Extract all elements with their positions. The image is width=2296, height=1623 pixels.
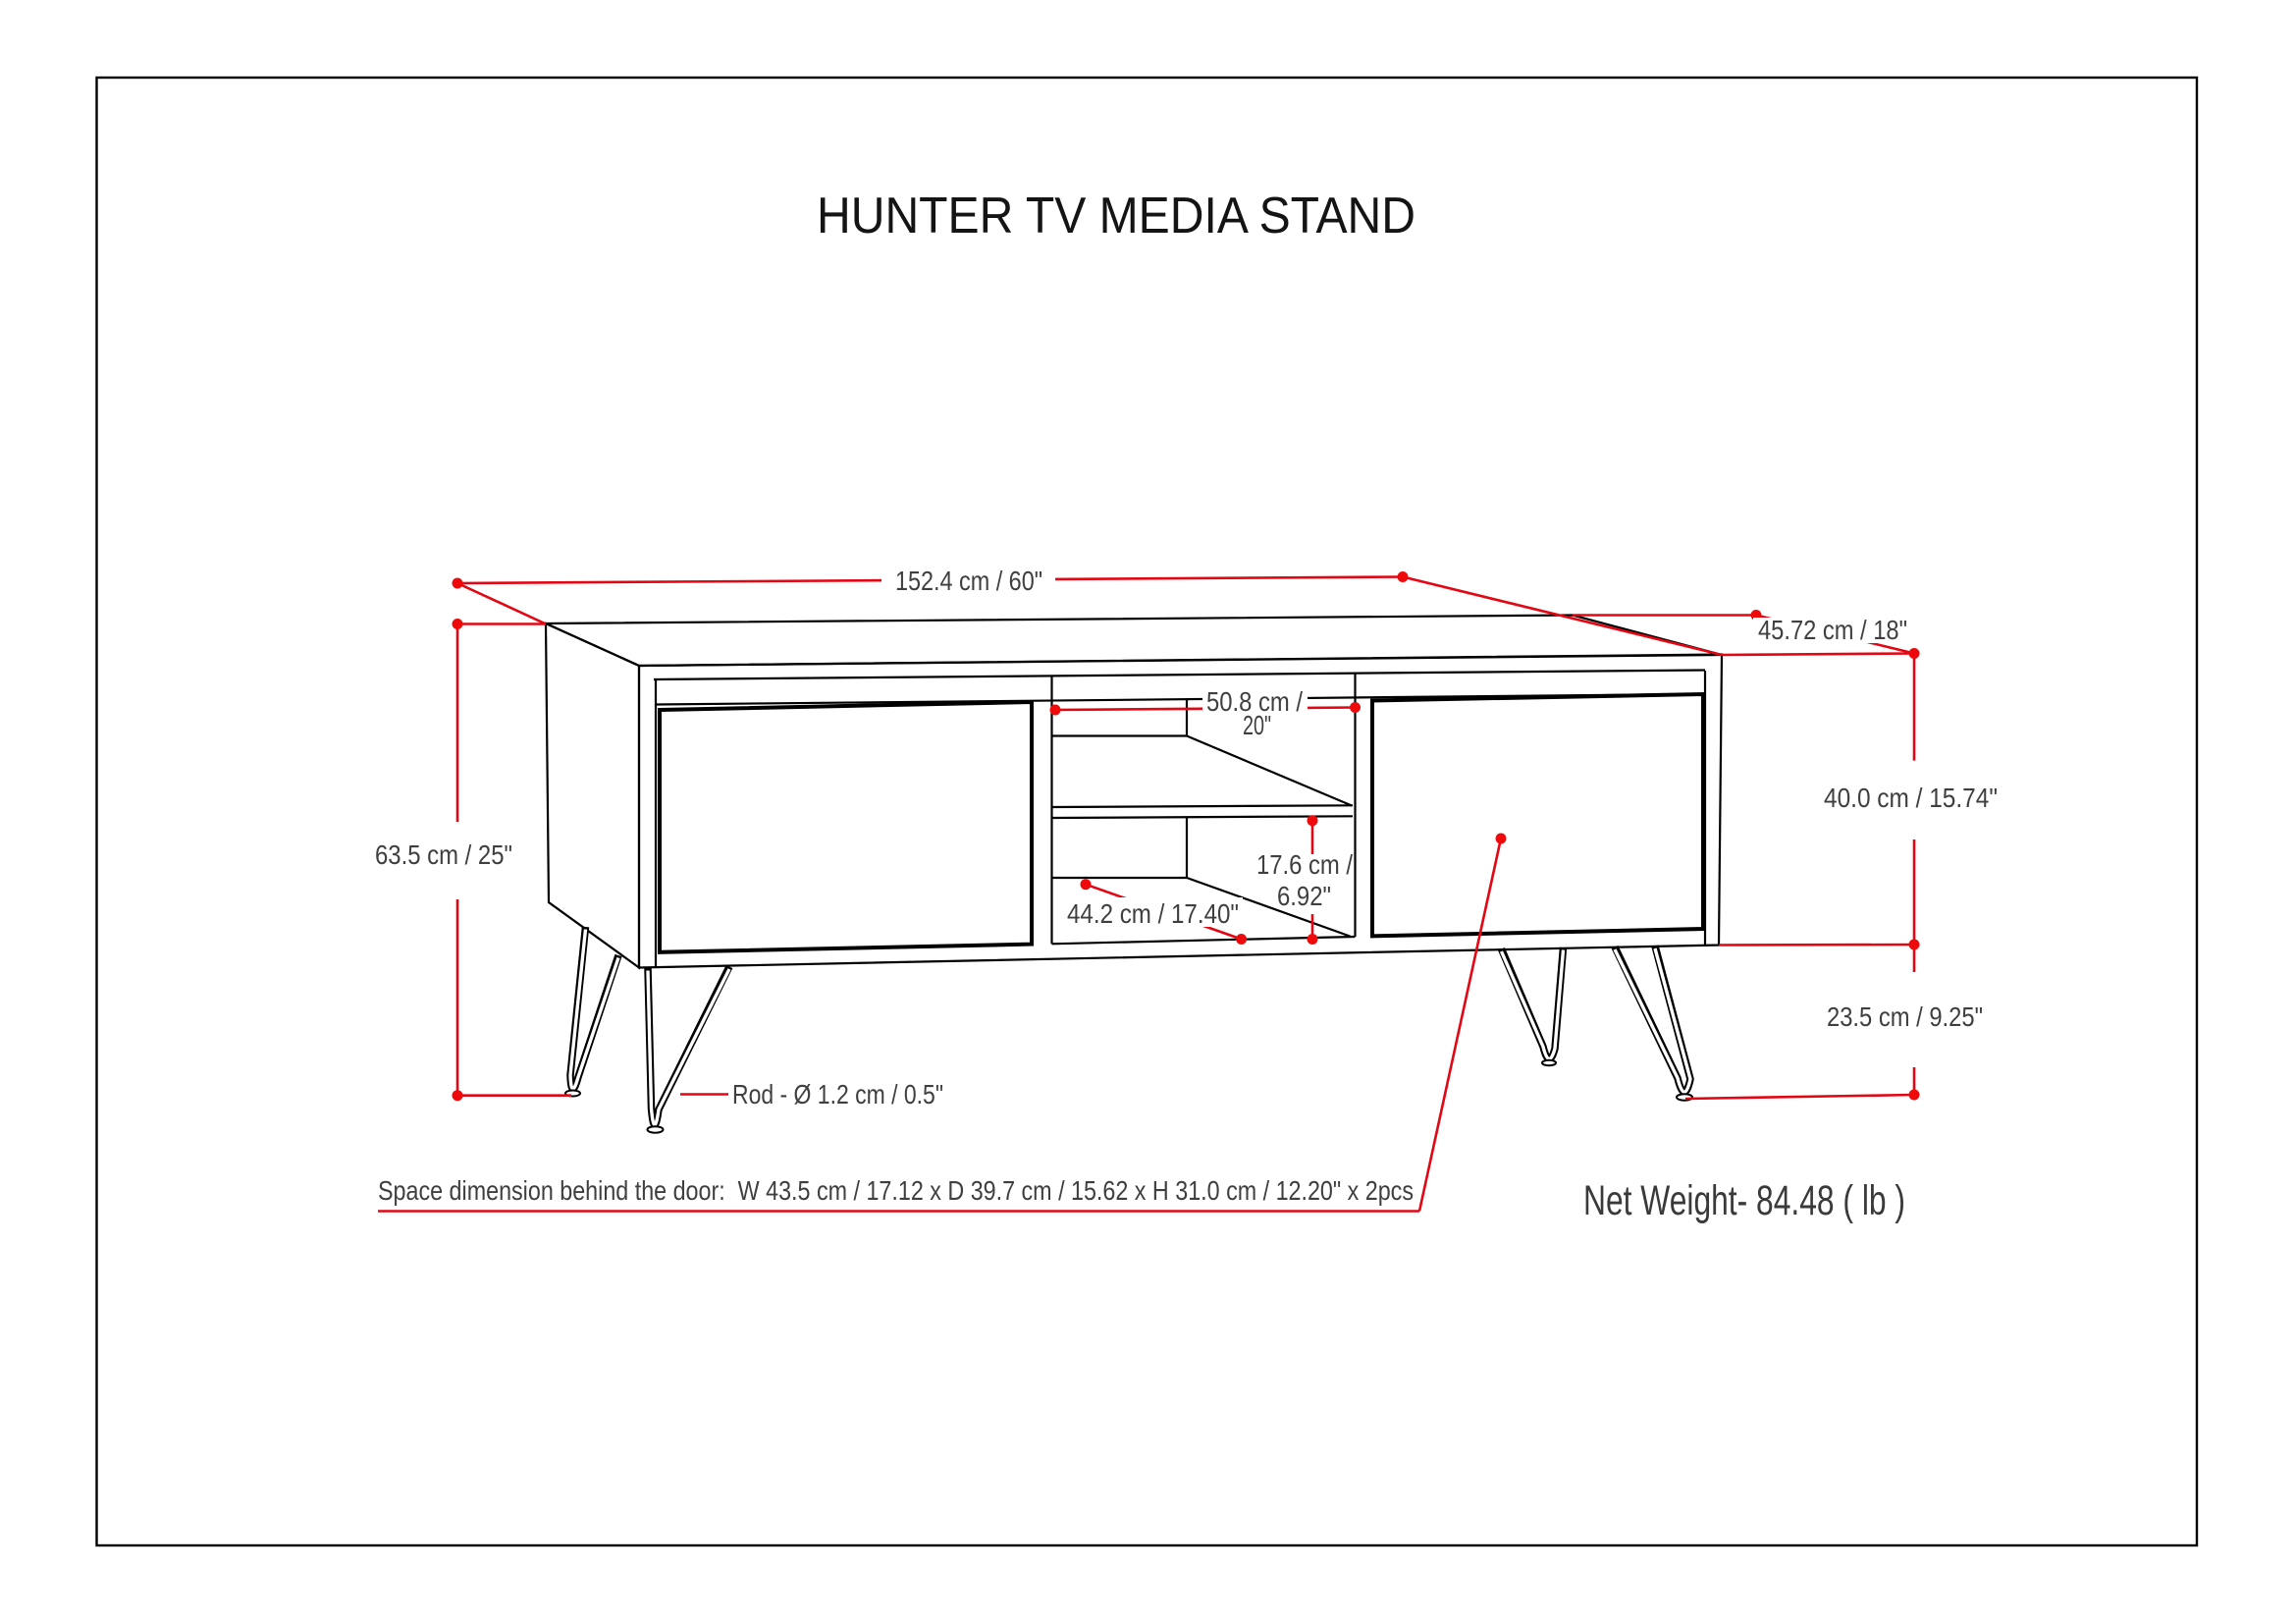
svg-text:23.5 cm / 9.25": 23.5 cm / 9.25": [1827, 1001, 1983, 1032]
svg-text:Space dimension behind the doo: Space dimension behind the door: W 43.5 …: [378, 1175, 1414, 1206]
svg-text:17.6 cm /: 17.6 cm /: [1256, 849, 1353, 880]
svg-text:6.92": 6.92": [1277, 881, 1331, 911]
svg-text:Net Weight- 84.48 ( lb ): Net Weight- 84.48 ( lb ): [1583, 1177, 1905, 1224]
svg-text:45.72 cm / 18": 45.72 cm / 18": [1758, 615, 1907, 645]
svg-text:152.4 cm / 60": 152.4 cm / 60": [895, 566, 1042, 596]
svg-text:Rod - Ø 1.2 cm / 0.5": Rod - Ø 1.2 cm / 0.5": [732, 1079, 943, 1109]
svg-text:44.2 cm / 17.40": 44.2 cm / 17.40": [1067, 898, 1239, 929]
svg-text:63.5 cm / 25": 63.5 cm / 25": [375, 839, 512, 870]
svg-text:HUNTER TV MEDIA STAND: HUNTER TV MEDIA STAND: [817, 188, 1415, 244]
svg-text:40.0 cm / 15.74": 40.0 cm / 15.74": [1824, 783, 1998, 813]
svg-text:20": 20": [1243, 710, 1271, 740]
